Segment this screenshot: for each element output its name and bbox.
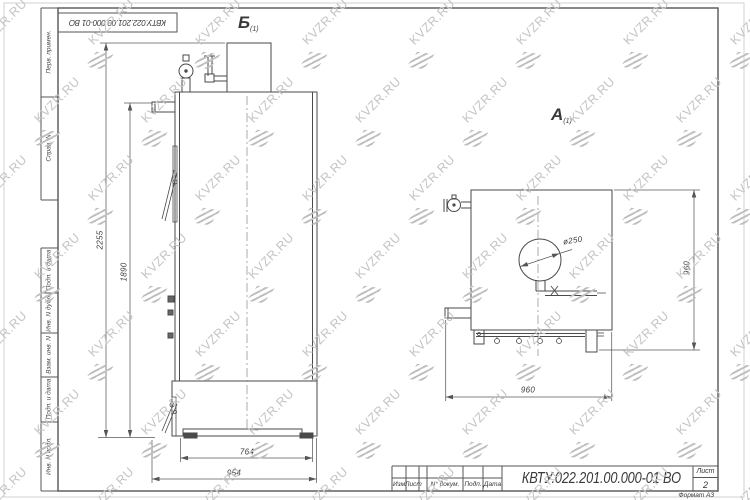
dim-body-width: 764: [240, 448, 254, 457]
tb-col-ndokum: N° докум.: [427, 481, 463, 488]
dim-total-height: 2255: [96, 231, 105, 250]
tb-col-izm: Изм: [392, 481, 406, 488]
drawing-sheet-svg: [0, 0, 750, 500]
dim-total-width: 954: [227, 469, 241, 478]
frame-label-podp-i-data-1: Подп. и дата: [46, 250, 53, 291]
drawing-sheet: КВТУ.022.201.00.000-01 ВО Перв. примен. …: [0, 0, 750, 500]
view-side-linework: [444, 190, 612, 356]
view-side-letter: А: [551, 105, 563, 124]
dim-side-height: 960: [683, 261, 692, 275]
tb-col-podp: Подп.: [463, 481, 483, 488]
tb-col-data: Дата: [483, 481, 502, 488]
title-block-doc-number-text: КВТУ.022.201.00.000-01 ВО: [522, 466, 681, 491]
view-front-linework: [152, 43, 317, 438]
top-box-doc-number: КВТУ.022.201.00.000-01 ВО: [58, 13, 177, 32]
dim-body-height: 1890: [120, 263, 129, 282]
dim-side-width: 960: [521, 386, 535, 395]
view-side-label: А(1): [551, 105, 572, 125]
view-front-label: Б(1): [238, 13, 259, 33]
frame-label-perv-primen: Перв. примен.: [46, 30, 53, 73]
view-front-sub: (1): [250, 26, 259, 33]
view-front-letter: Б: [238, 13, 250, 32]
frame-label-inv-n-podl: Инв. N подл.: [46, 437, 53, 475]
format-note: Формат А3: [648, 492, 714, 499]
dimension-linework: [98, 43, 700, 483]
title-block-doc-number: КВТУ.022.201.00.000-01 ВО: [502, 466, 693, 491]
frame-label-sprav-n: Справ. N: [46, 134, 53, 161]
frame-label-podp-i-data-2: Подп. и дата: [46, 379, 53, 420]
frame-linework: [4, 3, 744, 497]
view-side-sub: (1): [563, 118, 572, 125]
tb-col-list: Лист: [405, 481, 421, 488]
frame-label-inv-n-dubl: Инв. N дубл.: [46, 294, 53, 332]
sheet-number: 2: [693, 480, 718, 490]
sheet-label: Лист: [693, 468, 718, 475]
frame-label-vzam-inv-n: Взам. инв. N: [46, 336, 53, 374]
